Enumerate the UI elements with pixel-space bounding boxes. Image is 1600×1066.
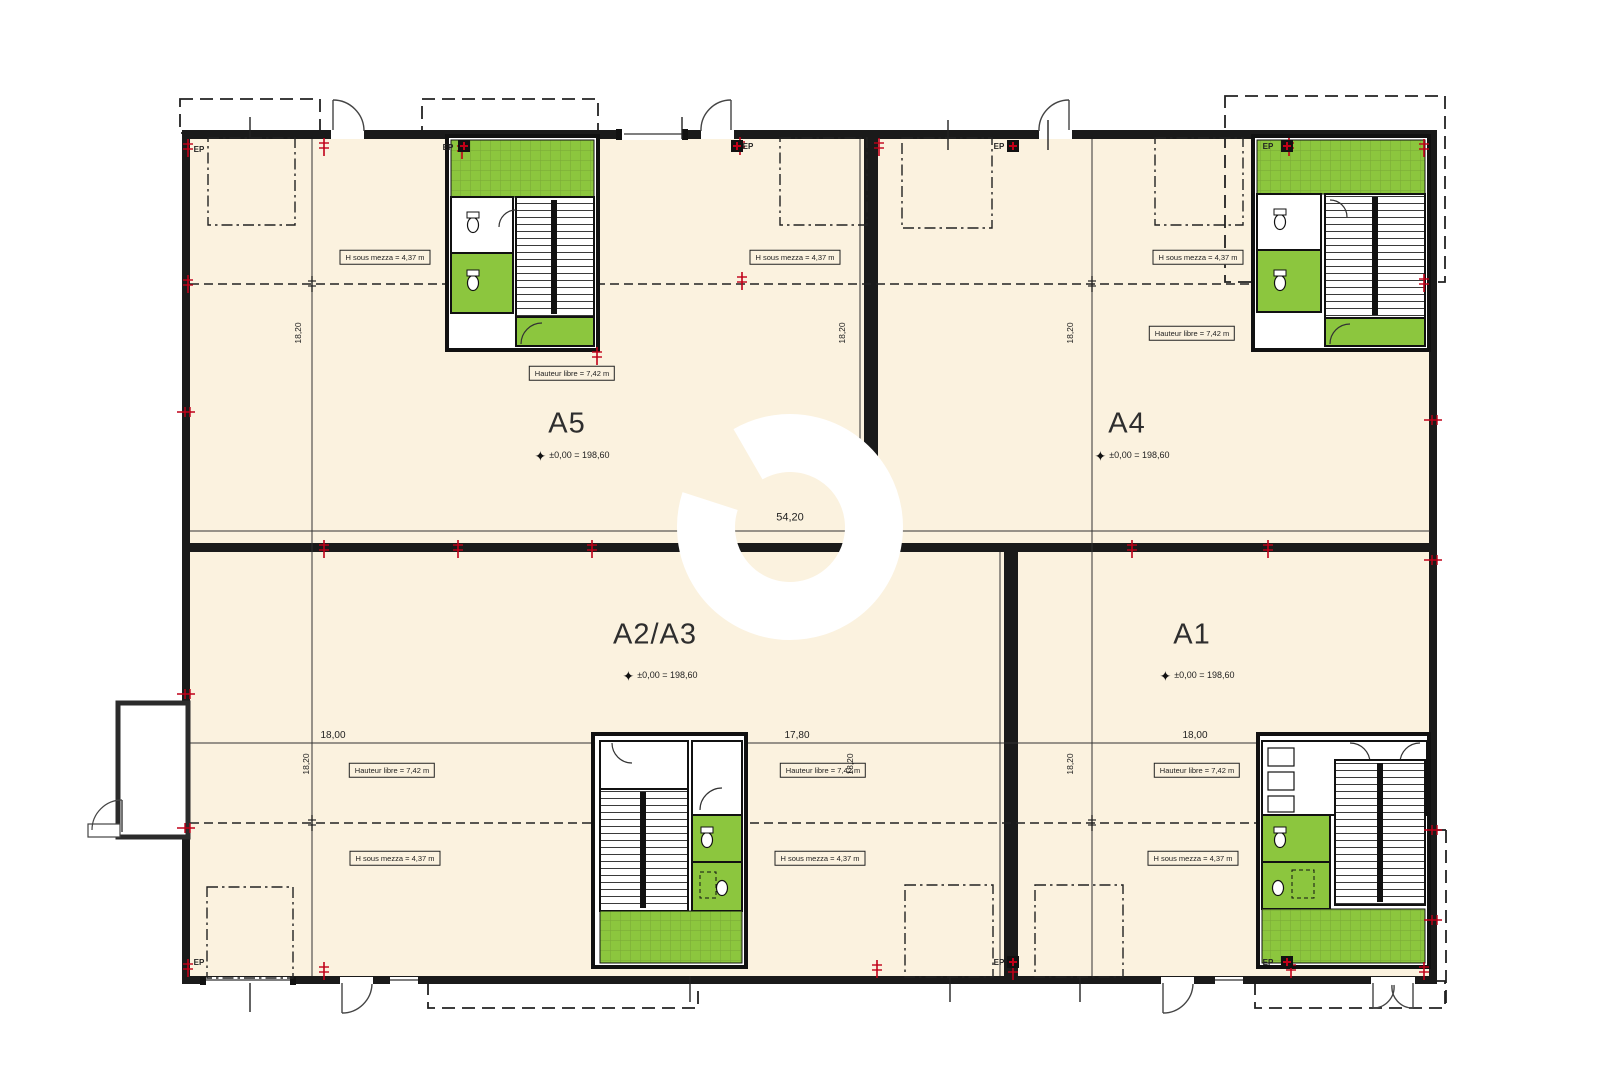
level-datum-star-icon: ✦ — [1095, 448, 1107, 464]
dimension-bay-left: 18,00 — [320, 731, 345, 741]
level-datum-a2a3: ✦±0,00 = 198,60 — [623, 669, 698, 683]
floor-plan-canvas: A5 A4 A2/A3 A1 ✦±0,00 = 198,60 ✦±0,00 = … — [0, 0, 1600, 1066]
floor-plan-drawing — [0, 0, 1600, 1066]
h-sous-mezza-label: H sous mezza = 4,37 m — [750, 250, 841, 265]
dimension-bay-right: 18,00 — [1182, 731, 1207, 741]
level-datum-text: ±0,00 = 198,60 — [1174, 670, 1234, 680]
hauteur-libre-label: Hauteur libre = 7,42 m — [529, 366, 615, 381]
stair-core-a5 — [447, 136, 598, 350]
ep-label: EP — [1263, 143, 1274, 151]
unit-label-a1: A1 — [1173, 621, 1210, 650]
stair-core-a4 — [1253, 136, 1429, 350]
level-datum-text: ±0,00 = 198,60 — [1109, 450, 1169, 460]
ep-label: EP — [743, 143, 754, 151]
dimension-bay-center: 17,80 — [784, 731, 809, 741]
ep-label: EP — [194, 959, 205, 967]
h-sous-mezza-label: H sous mezza = 4,37 m — [775, 851, 866, 866]
ep-label: EP — [194, 146, 205, 154]
stair-core-a2a3 — [593, 734, 746, 967]
h-sous-mezza-label: H sous mezza = 4,37 m — [1153, 250, 1244, 265]
level-datum-text: ±0,00 = 198,60 — [549, 450, 609, 460]
h-sous-mezza-label: H sous mezza = 4,37 m — [340, 250, 431, 265]
dimension-depth: 18,20 — [846, 753, 855, 774]
hauteur-libre-label: Hauteur libre = 7,42 m — [1154, 763, 1240, 778]
level-datum-a4: ✦±0,00 = 198,60 — [1095, 449, 1170, 463]
dimension-depth: 18,20 — [294, 322, 303, 343]
level-datum-star-icon: ✦ — [1160, 668, 1172, 684]
h-sous-mezza-label: H sous mezza = 4,37 m — [350, 851, 441, 866]
dimension-depth: 18,20 — [1066, 753, 1075, 774]
hauteur-libre-label: Hauteur libre = 7,42 m — [349, 763, 435, 778]
ep-label: EP — [994, 143, 1005, 151]
level-datum-a1: ✦±0,00 = 198,60 — [1160, 669, 1235, 683]
hauteur-libre-label: Hauteur libre = 7,42 m — [1149, 326, 1235, 341]
h-sous-mezza-label: H sous mezza = 4,37 m — [1148, 851, 1239, 866]
unit-label-a2a3: A2/A3 — [613, 621, 697, 650]
ep-label: EP — [1263, 959, 1274, 967]
level-datum-star-icon: ✦ — [535, 448, 547, 464]
left-technical-room — [88, 703, 188, 837]
stair-core-a1 — [1258, 734, 1429, 967]
dimension-depth: 18,20 — [302, 753, 311, 774]
level-datum-a5: ✦±0,00 = 198,60 — [535, 449, 610, 463]
unit-label-a5: A5 — [548, 410, 585, 439]
level-datum-text: ±0,00 = 198,60 — [637, 670, 697, 680]
unit-label-a4: A4 — [1108, 410, 1145, 439]
dimension-overall-width: 54,20 — [776, 513, 804, 524]
level-datum-star-icon: ✦ — [623, 668, 635, 684]
ep-label: EP — [994, 959, 1005, 967]
dimension-depth: 18,20 — [838, 322, 847, 343]
dimension-depth: 18,20 — [1066, 322, 1075, 343]
ep-label: EP — [443, 144, 454, 152]
